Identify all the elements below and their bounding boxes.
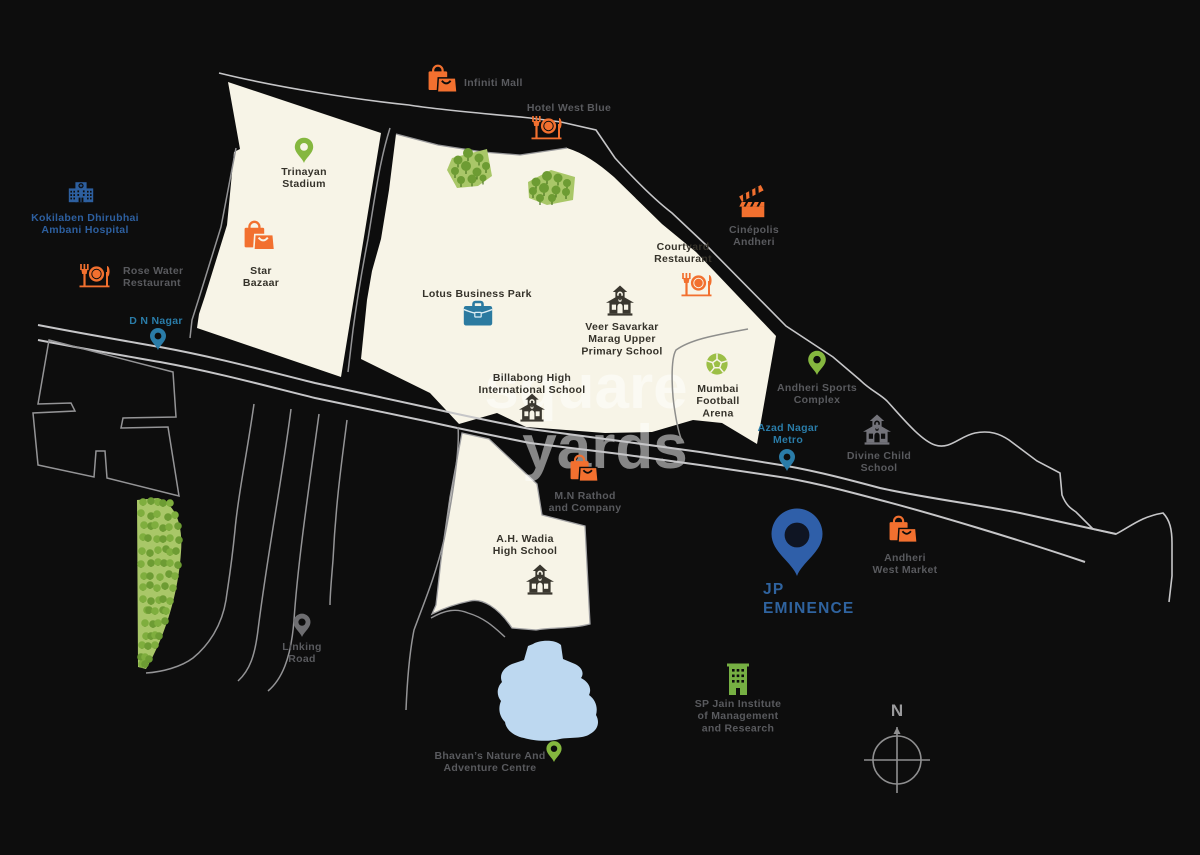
- svg-text:Infiniti Mall: Infiniti Mall: [464, 77, 523, 89]
- svg-text:JP: JP: [763, 581, 784, 598]
- svg-text:EMINENCE: EMINENCE: [763, 600, 854, 617]
- svg-text:Rose WaterRestaurant: Rose WaterRestaurant: [123, 265, 183, 289]
- svg-text:N: N: [891, 701, 903, 720]
- svg-text:Kokilaben DhirubhaiAmbani Hosp: Kokilaben DhirubhaiAmbani Hospital: [31, 212, 139, 236]
- svg-text:A.H. WadiaHigh School: A.H. WadiaHigh School: [493, 533, 558, 557]
- svg-text:Bhavan’s Nature AndAdventure C: Bhavan’s Nature AndAdventure Centre: [434, 750, 545, 774]
- svg-text:D N Nagar: D N Nagar: [129, 315, 182, 327]
- svg-text:CourtyardRestaurant: CourtyardRestaurant: [654, 241, 712, 265]
- svg-text:SP Jain Instituteof Management: SP Jain Instituteof Managementand Resear…: [695, 698, 782, 734]
- svg-text:CinépolisAndheri: CinépolisAndheri: [729, 224, 779, 248]
- svg-text:Veer SavarkarMarag UpperPrimar: Veer SavarkarMarag UpperPrimary School: [581, 321, 662, 357]
- svg-text:Hotel West Blue: Hotel West Blue: [527, 102, 611, 114]
- svg-text:Billabong HighInternational Sc: Billabong HighInternational School: [479, 372, 586, 396]
- svg-text:MumbaiFootballArena: MumbaiFootballArena: [696, 383, 739, 419]
- svg-text:Lotus Business Park: Lotus Business Park: [422, 288, 532, 300]
- svg-text:M.N Rathodand Company: M.N Rathodand Company: [549, 490, 622, 514]
- svg-text:TrinayanStadium: TrinayanStadium: [281, 166, 327, 190]
